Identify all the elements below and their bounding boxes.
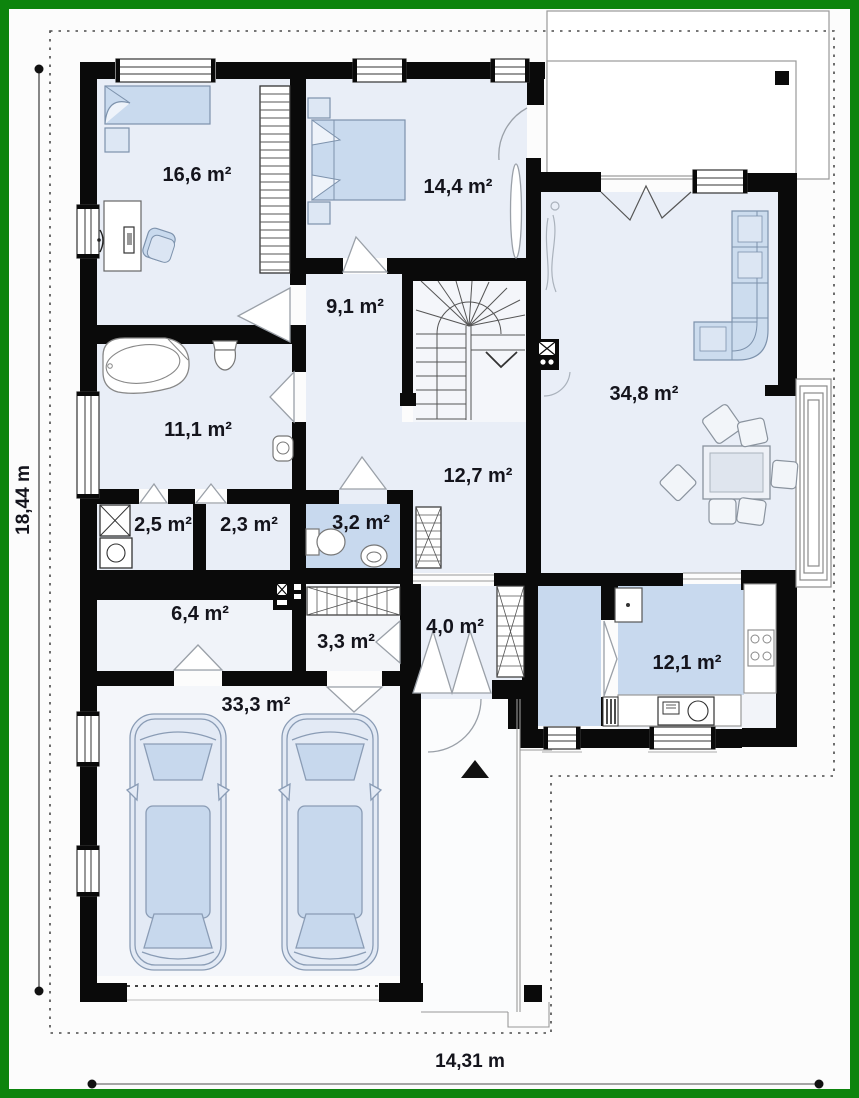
svg-text:33,3 m²: 33,3 m²	[222, 694, 291, 716]
svg-text:3,3 m²: 3,3 m²	[317, 631, 375, 653]
svg-text:12,1 m²: 12,1 m²	[653, 652, 722, 674]
svg-text:14,31 m: 14,31 m	[435, 1051, 505, 1072]
svg-text:34,8 m²: 34,8 m²	[610, 383, 679, 405]
svg-text:2,5 m²: 2,5 m²	[134, 514, 192, 536]
svg-text:14,4 m²: 14,4 m²	[424, 176, 493, 198]
svg-text:9,1 m²: 9,1 m²	[326, 296, 384, 318]
svg-text:2,3 m²: 2,3 m²	[220, 514, 278, 536]
svg-text:11,1 m²: 11,1 m²	[164, 419, 232, 441]
svg-text:16,6 m²: 16,6 m²	[163, 164, 232, 186]
svg-text:12,7 m²: 12,7 m²	[444, 465, 513, 487]
svg-text:3,2 m²: 3,2 m²	[332, 512, 390, 534]
svg-text:6,4 m²: 6,4 m²	[171, 603, 229, 625]
svg-text:18,44 m: 18,44 m	[13, 465, 34, 535]
svg-text:4,0 m²: 4,0 m²	[426, 616, 484, 638]
